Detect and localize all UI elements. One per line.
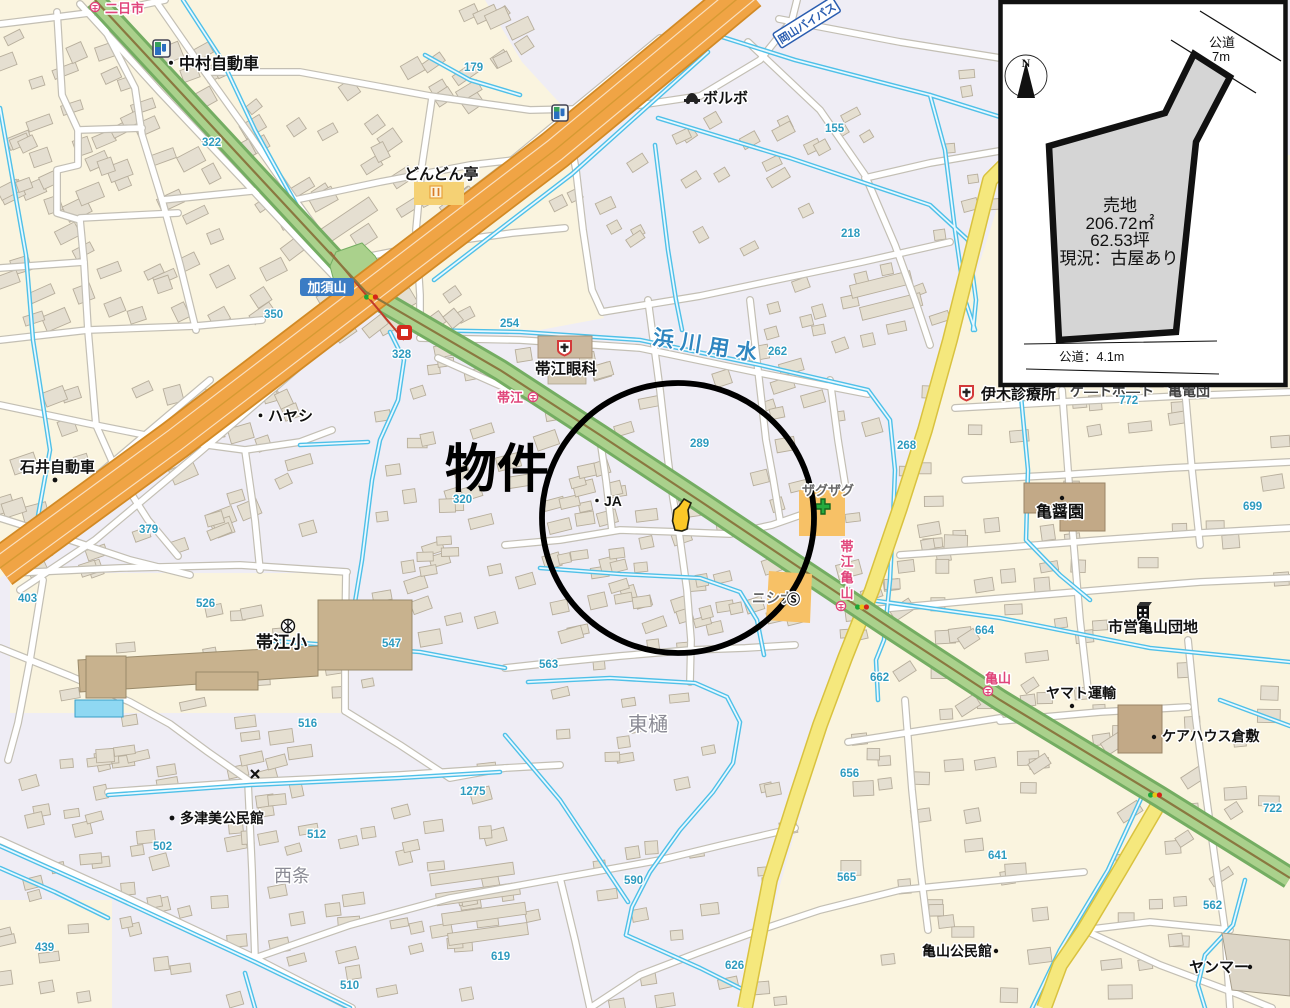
svg-text:439: 439 <box>35 942 54 954</box>
svg-text:・JA: ・JA <box>590 493 622 509</box>
svg-text:多津美公民館: 多津美公民館 <box>180 810 264 826</box>
svg-text:伊木診療所: 伊木診療所 <box>980 385 1056 403</box>
svg-text:641: 641 <box>988 850 1008 862</box>
svg-text:328: 328 <box>392 349 412 361</box>
svg-text:ザグザグ: ザグザグ <box>802 483 854 498</box>
svg-text:山: 山 <box>840 586 853 601</box>
svg-text:526: 526 <box>196 598 215 610</box>
svg-text:亀醤園: 亀醤園 <box>1036 502 1084 521</box>
svg-text:262: 262 <box>768 346 787 358</box>
svg-text:・中村自動車: ・中村自動車 <box>163 54 259 73</box>
svg-text:516: 516 <box>298 718 317 730</box>
svg-text:350: 350 <box>264 309 283 321</box>
svg-text:西条: 西条 <box>274 866 310 886</box>
svg-text:現況：古屋あり: 現況：古屋あり <box>1060 249 1179 268</box>
svg-text:帯江: 帯江 <box>497 390 523 405</box>
svg-text:帯: 帯 <box>840 539 853 554</box>
svg-text:物件: 物件 <box>445 441 549 499</box>
svg-text:二日市: 二日市 <box>105 1 144 16</box>
svg-text:ヤマト運輸: ヤマト運輸 <box>1046 685 1117 701</box>
svg-text:ヤンマー: ヤンマー <box>1189 959 1249 976</box>
svg-text:155: 155 <box>825 123 845 135</box>
svg-text:加須山: 加須山 <box>306 280 346 295</box>
svg-text:179: 179 <box>464 62 483 74</box>
svg-text:亀: 亀 <box>840 570 853 585</box>
svg-text:218: 218 <box>841 228 861 240</box>
svg-text:590: 590 <box>624 875 643 887</box>
svg-text:268: 268 <box>897 440 917 452</box>
svg-text:656: 656 <box>840 768 859 780</box>
svg-text:772: 772 <box>1119 395 1138 407</box>
svg-text:547: 547 <box>382 638 401 650</box>
svg-text:662: 662 <box>870 672 889 684</box>
svg-text:石井自動車: 石井自動車 <box>19 458 95 476</box>
svg-text:亀山公民館: 亀山公民館 <box>922 943 992 959</box>
svg-text:1275: 1275 <box>460 786 486 798</box>
svg-text:亀山: 亀山 <box>985 671 1011 686</box>
svg-text:売地: 売地 <box>1103 196 1137 215</box>
svg-text:帯江眼科: 帯江眼科 <box>535 359 598 378</box>
svg-text:722: 722 <box>1263 803 1282 815</box>
svg-text:帯江小: 帯江小 <box>256 632 307 652</box>
svg-text:502: 502 <box>153 841 172 853</box>
svg-text:699: 699 <box>1243 501 1262 513</box>
svg-text:562: 562 <box>1203 900 1222 912</box>
svg-text:62.53坪: 62.53坪 <box>1090 231 1150 250</box>
svg-text:626: 626 <box>725 960 744 972</box>
svg-text:563: 563 <box>539 659 558 671</box>
svg-text:7m: 7m <box>1212 49 1230 64</box>
svg-text:ケアハウス倉敷: ケアハウス倉敷 <box>1162 728 1260 744</box>
svg-text:東樋: 東樋 <box>628 713 668 736</box>
svg-text:403: 403 <box>18 593 37 605</box>
svg-text:ボルボ: ボルボ <box>703 90 748 107</box>
svg-text:619: 619 <box>491 951 510 963</box>
svg-text:254: 254 <box>500 318 520 330</box>
svg-text:公道: 公道 <box>1209 35 1235 50</box>
svg-text:512: 512 <box>307 829 326 841</box>
svg-text:公道：4.1m: 公道：4.1m <box>1059 350 1124 364</box>
svg-text:565: 565 <box>837 872 857 884</box>
svg-text:江: 江 <box>840 554 853 569</box>
svg-text:市営亀山団地: 市営亀山団地 <box>1108 618 1198 636</box>
svg-text:・ハヤシ: ・ハヤシ <box>253 408 313 425</box>
svg-text:Ⓢ: Ⓢ <box>787 592 800 607</box>
svg-text:664: 664 <box>975 625 995 637</box>
svg-text:289: 289 <box>690 438 709 450</box>
svg-text:510: 510 <box>340 980 359 992</box>
svg-text:379: 379 <box>139 524 158 536</box>
svg-text:どんどん亭: どんどん亭 <box>404 165 479 183</box>
svg-text:322: 322 <box>202 137 221 149</box>
